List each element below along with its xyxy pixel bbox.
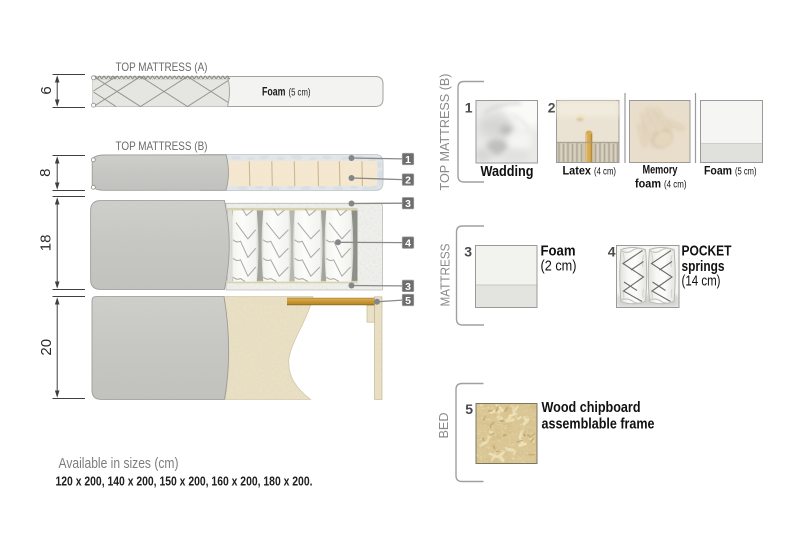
svg-text:foam(4 cm): foam(4 cm) (635, 179, 687, 191)
svg-text:3: 3 (405, 281, 411, 293)
svg-text:TOP MATTRESS (B): TOP MATTRESS (B) (437, 74, 452, 191)
svg-text:TOP MATTRESS (A): TOP MATTRESS (A) (116, 60, 208, 74)
svg-text:(14 cm): (14 cm) (682, 273, 721, 290)
svg-text:5: 5 (405, 295, 411, 307)
svg-text:8: 8 (37, 169, 54, 177)
svg-text:6: 6 (38, 86, 55, 94)
svg-text:1: 1 (465, 100, 473, 116)
svg-text:1: 1 (405, 154, 411, 166)
svg-text:Wood chipboard: Wood chipboard (542, 399, 641, 416)
svg-text:4: 4 (608, 244, 616, 260)
svg-text:20: 20 (38, 339, 55, 356)
svg-text:Wadding: Wadding (481, 164, 534, 180)
svg-text:POCKET: POCKET (682, 243, 732, 260)
svg-text:Latex(4 cm): Latex(4 cm) (563, 166, 617, 178)
svg-text:120 x 200, 140 x 200, 150 x 20: 120 x 200, 140 x 200, 150 x 200, 160 x 2… (56, 474, 313, 489)
svg-text:BED: BED (436, 413, 451, 439)
svg-text:3: 3 (464, 244, 472, 260)
svg-text:2: 2 (548, 100, 556, 116)
svg-text:2: 2 (405, 175, 411, 187)
svg-text:Available in sizes (cm): Available in sizes (cm) (59, 455, 179, 472)
svg-text:18: 18 (37, 235, 54, 252)
svg-text:Foam(5 cm): Foam(5 cm) (704, 166, 757, 178)
svg-text:Memory: Memory (643, 165, 678, 177)
svg-text:(2 cm): (2 cm) (541, 258, 577, 275)
svg-text:3: 3 (405, 198, 411, 210)
svg-text:4: 4 (405, 238, 411, 250)
svg-text:TOP MATTRESS (B): TOP MATTRESS (B) (116, 139, 208, 153)
svg-text:5: 5 (465, 401, 473, 417)
svg-text:MATTRESS: MATTRESS (437, 243, 452, 306)
svg-text:assemblable frame: assemblable frame (542, 416, 655, 433)
